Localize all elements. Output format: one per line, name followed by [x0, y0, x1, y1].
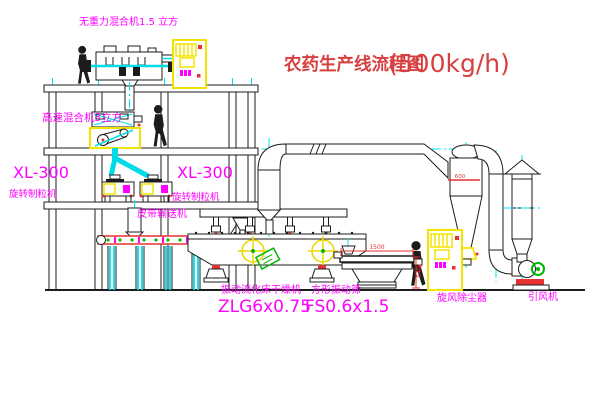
sieve-width-dim: 1500 — [369, 244, 384, 251]
granulator-left — [102, 175, 135, 202]
indicator-light — [452, 266, 456, 270]
button[interactable] — [435, 262, 438, 268]
button[interactable] — [439, 262, 442, 268]
label-cyclone: 旋风除尘器 — [437, 291, 487, 304]
fan-base — [516, 279, 544, 285]
stack-cap — [505, 160, 539, 174]
indicator-light — [198, 45, 202, 49]
cyclone-level-dim: 600 — [455, 174, 466, 180]
label-fan: 引风机 — [528, 290, 558, 303]
button[interactable] — [188, 70, 191, 76]
floor-slab-low — [44, 202, 258, 209]
label-granulator-right-name: 旋转制粒机 — [172, 191, 220, 203]
control-cabinet-2 — [428, 230, 462, 290]
cad-flow-diagram: 600 — [0, 0, 600, 403]
fluid-bed-dryer — [188, 209, 366, 282]
dryer-feet — [204, 265, 334, 282]
diagram-capacity: (500kg/h) — [388, 49, 510, 78]
label-gravityless-mixer: 无重力混合机1.5 立方 — [79, 15, 178, 28]
control-cabinet-1 — [173, 40, 206, 88]
sieve-height-dim: 540 — [416, 266, 423, 278]
button[interactable] — [180, 70, 183, 76]
label-dryer-model: ZLG6x0.75 — [218, 297, 311, 317]
label-sieve-model: FS0.6x1.5 — [305, 297, 389, 317]
label-high-speed-mixer: 高速混合机3立方 — [42, 111, 122, 124]
label-dryer-name: 振动流化床干燥机 — [221, 283, 301, 296]
floor-slab-top — [44, 85, 258, 92]
button[interactable] — [184, 70, 187, 76]
label-belt-conveyor: 皮带输送机 — [137, 207, 187, 220]
label-granulator-left-name: 旋转制粒机 — [9, 188, 57, 200]
button[interactable] — [443, 262, 446, 268]
duct-elbow — [258, 144, 286, 170]
label-granulator-left-model: XL-300 — [13, 163, 69, 182]
indicator-light — [197, 74, 201, 78]
label-granulator-right-model: XL-300 — [177, 163, 233, 182]
floor-slab-mid — [44, 148, 258, 155]
conveyor-legs — [108, 246, 200, 290]
label-sieve-name: 方形振动筛 — [311, 283, 361, 296]
square-vibrating-sieve: 1500 540 — [334, 238, 423, 288]
indicator-light — [455, 236, 459, 240]
